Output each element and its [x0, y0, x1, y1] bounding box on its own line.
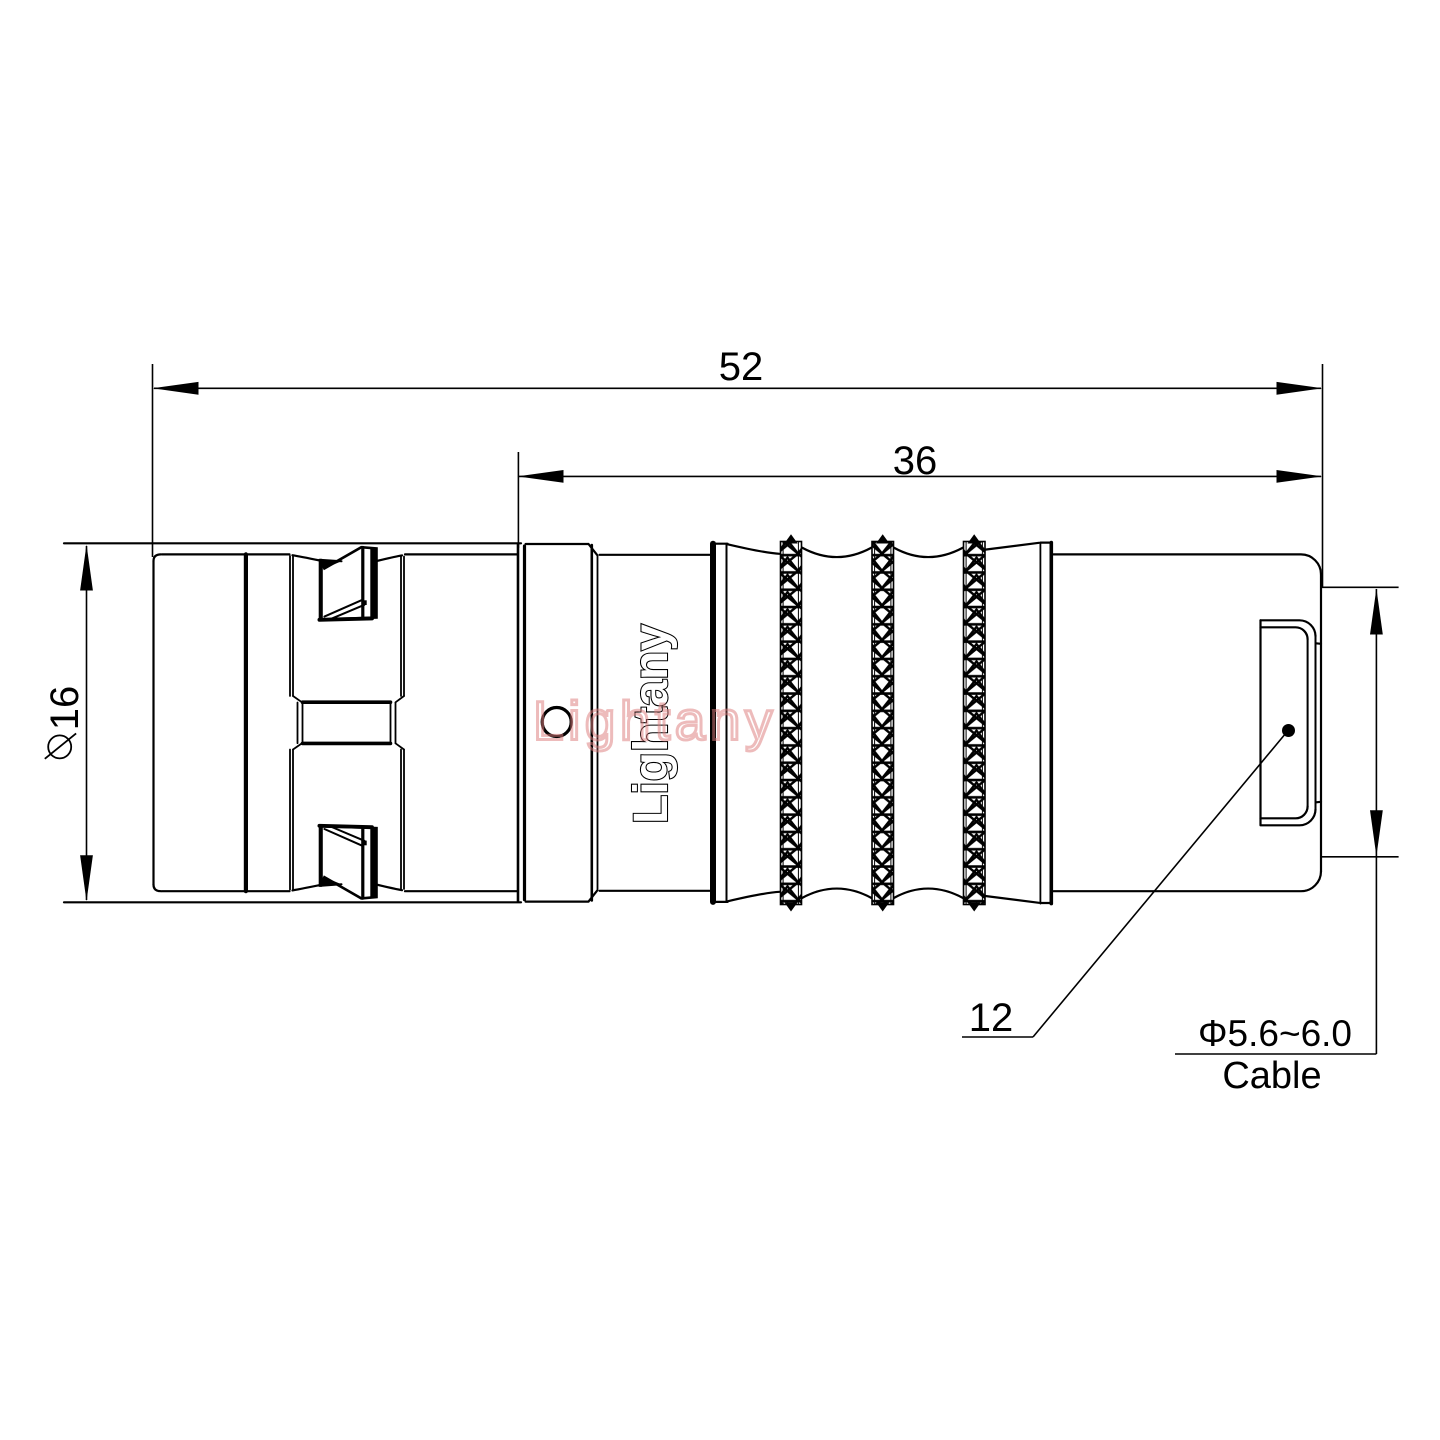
svg-text:Φ5.6~6.0: Φ5.6~6.0 — [1198, 1013, 1352, 1054]
svg-text:36: 36 — [893, 439, 938, 483]
svg-text:Lightany: Lightany — [533, 690, 777, 752]
svg-text:12: 12 — [969, 996, 1014, 1040]
svg-text:16: 16 — [43, 686, 87, 731]
svg-text:52: 52 — [719, 345, 764, 389]
svg-text:Cable: Cable — [1222, 1055, 1321, 1097]
